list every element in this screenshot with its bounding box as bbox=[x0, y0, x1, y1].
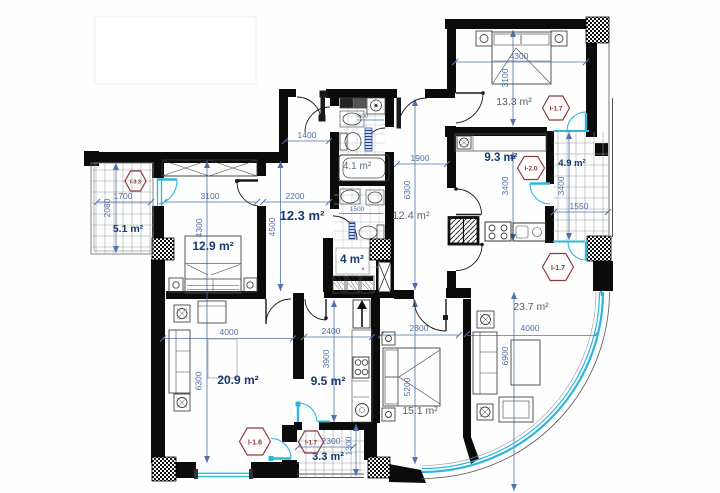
svg-text:3100: 3100 bbox=[500, 68, 510, 87]
svg-text:3100: 3100 bbox=[201, 191, 220, 201]
svg-text:4300: 4300 bbox=[194, 218, 204, 237]
svg-text:2800: 2800 bbox=[410, 323, 429, 333]
svg-text:4.9 m²: 4.9 m² bbox=[558, 158, 585, 169]
svg-text:I-1.7: I-1.7 bbox=[551, 265, 565, 272]
svg-text:1400: 1400 bbox=[298, 130, 317, 140]
svg-text:20.9 m²: 20.9 m² bbox=[217, 373, 258, 387]
svg-text:5.1 m²: 5.1 m² bbox=[113, 223, 144, 235]
svg-text:12.9 m²: 12.9 m² bbox=[192, 239, 233, 253]
svg-text:4.1 m²: 4.1 m² bbox=[343, 161, 372, 172]
svg-text:4300: 4300 bbox=[510, 51, 529, 61]
svg-text:2400: 2400 bbox=[322, 326, 341, 336]
svg-text:13.3 m²: 13.3 m² bbox=[496, 96, 532, 108]
svg-text:I-1.7: I-1.7 bbox=[305, 441, 318, 447]
svg-text:2200: 2200 bbox=[286, 191, 305, 201]
svg-text:6300: 6300 bbox=[402, 180, 412, 199]
svg-text:1700: 1700 bbox=[114, 191, 133, 201]
svg-text:9.3 m²: 9.3 m² bbox=[484, 152, 517, 164]
svg-text:600: 600 bbox=[358, 114, 369, 120]
svg-text:×: × bbox=[361, 267, 365, 273]
svg-text:4000: 4000 bbox=[220, 327, 239, 337]
svg-text:4500: 4500 bbox=[267, 217, 277, 236]
svg-text:1550: 1550 bbox=[570, 201, 589, 211]
svg-text:4000: 4000 bbox=[521, 323, 540, 333]
svg-text:1500: 1500 bbox=[350, 206, 365, 213]
svg-text:15.1 m²: 15.1 m² bbox=[402, 405, 438, 417]
svg-text:1900: 1900 bbox=[411, 153, 430, 163]
svg-text:6300: 6300 bbox=[194, 371, 204, 390]
svg-text:1300: 1300 bbox=[344, 436, 354, 455]
svg-text:3900: 3900 bbox=[321, 349, 331, 368]
svg-text:2080: 2080 bbox=[102, 198, 112, 217]
svg-text:I-3.3: I-3.3 bbox=[130, 180, 141, 186]
svg-text:3400: 3400 bbox=[500, 176, 510, 195]
svg-text:I-1.7: I-1.7 bbox=[549, 106, 562, 113]
svg-text:2300: 2300 bbox=[322, 436, 341, 446]
svg-text:4 m²: 4 m² bbox=[340, 254, 364, 266]
svg-text:23.7 m²: 23.7 m² bbox=[513, 301, 549, 313]
svg-text:6900: 6900 bbox=[500, 346, 510, 365]
svg-text:I-2.0: I-2.0 bbox=[524, 166, 537, 173]
svg-text:12.4 m²: 12.4 m² bbox=[392, 210, 430, 222]
svg-text:12.3 m²: 12.3 m² bbox=[280, 208, 325, 223]
svg-text:9.5 m²: 9.5 m² bbox=[311, 374, 346, 388]
svg-text:I-1.6: I-1.6 bbox=[248, 440, 262, 447]
svg-text:3400: 3400 bbox=[556, 176, 566, 195]
